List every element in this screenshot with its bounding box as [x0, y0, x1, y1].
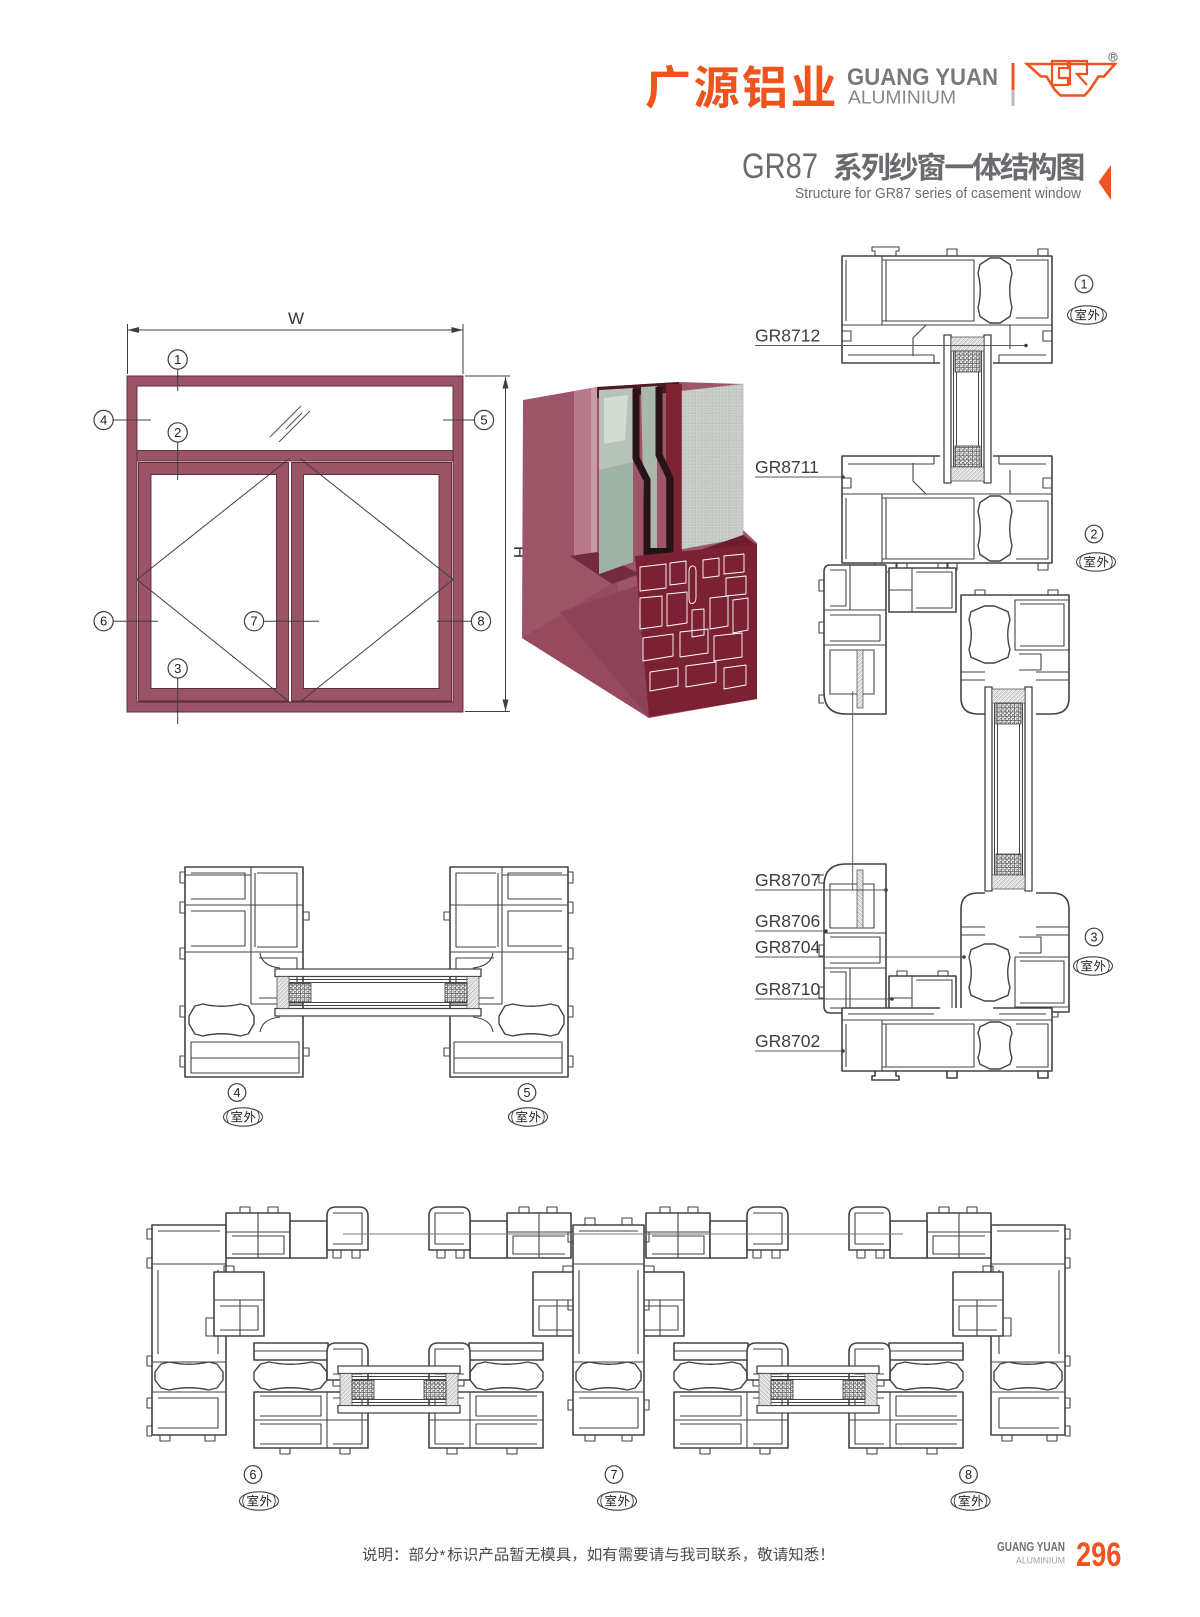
svg-text:7: 7: [250, 614, 257, 629]
svg-text:Structure for GR87 series of c: Structure for GR87 series of casement wi…: [795, 186, 1081, 202]
svg-text:GR8707: GR8707: [755, 870, 820, 890]
svg-text:3: 3: [1091, 931, 1098, 945]
svg-text:6: 6: [250, 1468, 257, 1482]
svg-text:1: 1: [1081, 278, 1088, 292]
svg-text:4: 4: [234, 1086, 241, 1100]
svg-text:GR8712: GR8712: [755, 326, 820, 346]
svg-text:2: 2: [1091, 528, 1098, 542]
svg-text:GR87: GR87: [742, 147, 818, 186]
svg-text:1: 1: [174, 352, 181, 367]
svg-text:6: 6: [100, 614, 107, 629]
svg-text:3: 3: [174, 661, 181, 676]
svg-text:GR8706: GR8706: [755, 911, 820, 931]
svg-text:W: W: [288, 309, 304, 328]
svg-text:4: 4: [100, 413, 107, 428]
svg-text:ALUMINIUM: ALUMINIUM: [848, 88, 956, 108]
svg-text:2: 2: [174, 425, 181, 440]
svg-text:8: 8: [477, 614, 484, 629]
svg-text:8: 8: [965, 1468, 972, 1482]
svg-text:GUANG YUAN: GUANG YUAN: [997, 1540, 1065, 1554]
svg-text:GR8704: GR8704: [755, 937, 820, 957]
svg-text:5: 5: [480, 413, 487, 428]
svg-text:5: 5: [524, 1086, 531, 1100]
svg-text:*: *: [440, 1547, 446, 1564]
svg-text:GR8711: GR8711: [755, 457, 819, 477]
svg-text:GR8702: GR8702: [755, 1031, 820, 1051]
svg-text:ALUMINIUM: ALUMINIUM: [1016, 1556, 1065, 1567]
svg-text:296: 296: [1076, 1535, 1121, 1574]
svg-text:7: 7: [611, 1468, 618, 1482]
svg-text:GR8710: GR8710: [755, 979, 820, 999]
